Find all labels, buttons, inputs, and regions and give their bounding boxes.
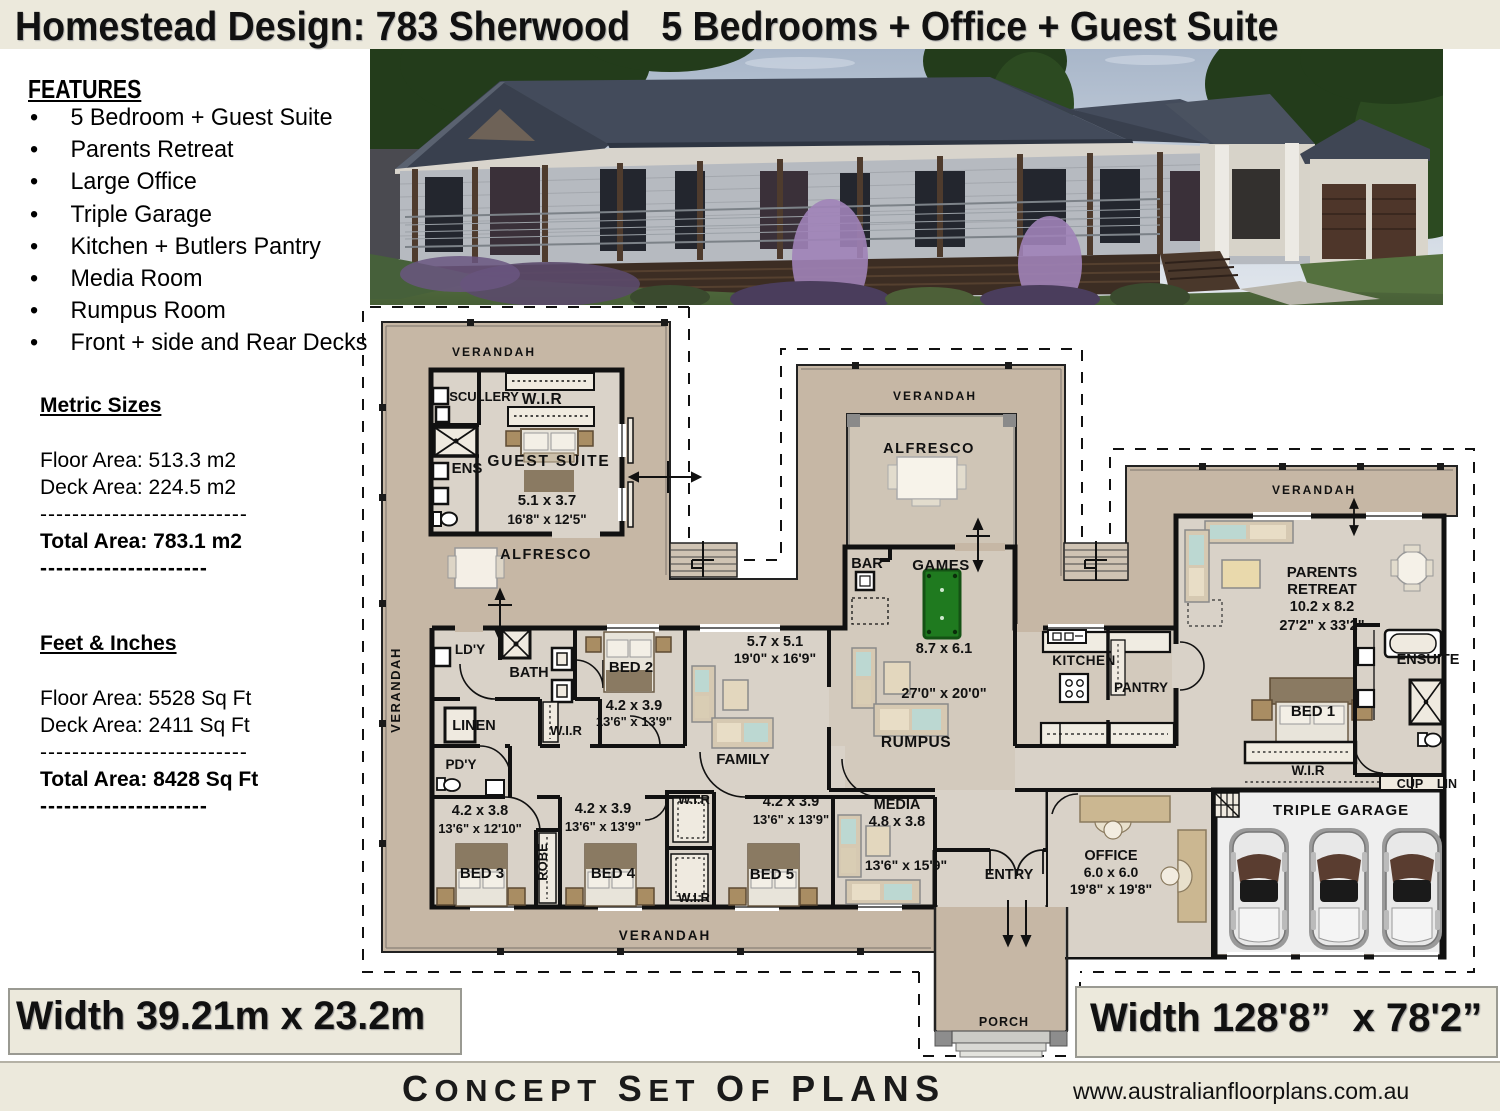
svg-text:13'6" x 13'9": 13'6" x 13'9" bbox=[565, 819, 641, 834]
svg-text:19'0" x 16'9": 19'0" x 16'9" bbox=[734, 650, 816, 666]
svg-text:PORCH: PORCH bbox=[979, 1015, 1029, 1029]
svg-text:GAMES: GAMES bbox=[912, 557, 970, 574]
svg-text:5.1 x 3.7: 5.1 x 3.7 bbox=[518, 492, 576, 509]
svg-text:4.2 x 3.9: 4.2 x 3.9 bbox=[763, 794, 819, 810]
svg-text:CUP: CUP bbox=[1397, 777, 1423, 791]
svg-text:BED 2: BED 2 bbox=[609, 659, 653, 676]
svg-text:RUMPUS: RUMPUS bbox=[881, 734, 951, 751]
svg-text:PD'Y: PD'Y bbox=[446, 757, 477, 772]
svg-text:W.I.R: W.I.R bbox=[678, 890, 710, 905]
svg-text:13'6" x 13'9": 13'6" x 13'9" bbox=[596, 714, 672, 729]
svg-text:VERANDAH: VERANDAH bbox=[619, 928, 712, 943]
svg-text:16'8" x 12'5": 16'8" x 12'5" bbox=[507, 512, 586, 527]
svg-text:LIN: LIN bbox=[1437, 777, 1457, 791]
svg-text:6.0 x 6.0: 6.0 x 6.0 bbox=[1084, 864, 1139, 880]
svg-text:SCULLERY: SCULLERY bbox=[449, 389, 519, 404]
svg-text:GUEST SUITE: GUEST SUITE bbox=[487, 453, 610, 470]
svg-text:W.I.R: W.I.R bbox=[1292, 763, 1325, 778]
svg-text:W.I.R: W.I.R bbox=[550, 723, 582, 738]
svg-text:FAMILY: FAMILY bbox=[716, 751, 770, 768]
svg-text:19'8" x 19'8": 19'8" x 19'8" bbox=[1070, 881, 1152, 897]
svg-text:PANTRY: PANTRY bbox=[1114, 680, 1168, 695]
svg-text:ROBE: ROBE bbox=[535, 843, 550, 881]
svg-text:BED 3: BED 3 bbox=[460, 865, 504, 882]
svg-text:13'6" x 13'9": 13'6" x 13'9" bbox=[753, 812, 829, 827]
svg-text:ENSUITE: ENSUITE bbox=[1397, 652, 1460, 668]
svg-text:BAR: BAR bbox=[851, 556, 883, 572]
svg-text:ENTRY: ENTRY bbox=[985, 867, 1034, 883]
svg-text:13'6" x 15'9": 13'6" x 15'9" bbox=[865, 857, 947, 873]
svg-text:W.I.R: W.I.R bbox=[522, 391, 562, 408]
svg-text:4.2 x 3.8: 4.2 x 3.8 bbox=[452, 803, 508, 819]
svg-text:27'0" x 20'0": 27'0" x 20'0" bbox=[901, 686, 986, 702]
svg-text:LD'Y: LD'Y bbox=[455, 642, 485, 657]
svg-text:13'6" x 12'10": 13'6" x 12'10" bbox=[438, 821, 522, 836]
svg-text:RETREAT: RETREAT bbox=[1287, 581, 1357, 598]
svg-text:VERANDAH: VERANDAH bbox=[388, 647, 403, 733]
svg-text:VERANDAH: VERANDAH bbox=[893, 389, 977, 403]
svg-text:BATH: BATH bbox=[509, 665, 548, 681]
svg-text:VERANDAH: VERANDAH bbox=[452, 345, 536, 359]
svg-text:BED 4: BED 4 bbox=[591, 865, 636, 882]
svg-text:5.7 x 5.1: 5.7 x 5.1 bbox=[747, 634, 803, 650]
svg-text:4.8 x 3.8: 4.8 x 3.8 bbox=[869, 814, 925, 830]
svg-text:VERANDAH: VERANDAH bbox=[1272, 483, 1356, 497]
svg-text:W.I.R: W.I.R bbox=[678, 792, 710, 807]
svg-text:4.2 x 3.9: 4.2 x 3.9 bbox=[575, 801, 631, 817]
svg-text:27'2" x 33'2": 27'2" x 33'2" bbox=[1279, 618, 1364, 634]
svg-text:ALFRESCO: ALFRESCO bbox=[883, 441, 975, 457]
svg-text:MEDIA: MEDIA bbox=[874, 797, 921, 813]
svg-text:10.2 x 8.2: 10.2 x 8.2 bbox=[1290, 599, 1355, 615]
svg-text:8.7 x 6.1: 8.7 x 6.1 bbox=[916, 641, 972, 657]
svg-text:4.2 x 3.9: 4.2 x 3.9 bbox=[606, 698, 662, 714]
svg-text:BED 5: BED 5 bbox=[750, 866, 794, 883]
svg-text:LINEN: LINEN bbox=[452, 718, 496, 734]
svg-text:OFFICE: OFFICE bbox=[1084, 848, 1137, 864]
svg-text:BED 1: BED 1 bbox=[1291, 703, 1335, 720]
svg-text:KITCHEN: KITCHEN bbox=[1052, 653, 1116, 668]
svg-text:TRIPLE GARAGE: TRIPLE GARAGE bbox=[1273, 802, 1409, 819]
svg-text:ENS: ENS bbox=[452, 460, 483, 477]
svg-text:PARENTS: PARENTS bbox=[1287, 564, 1358, 581]
svg-text:ALFRESCO: ALFRESCO bbox=[500, 547, 592, 563]
